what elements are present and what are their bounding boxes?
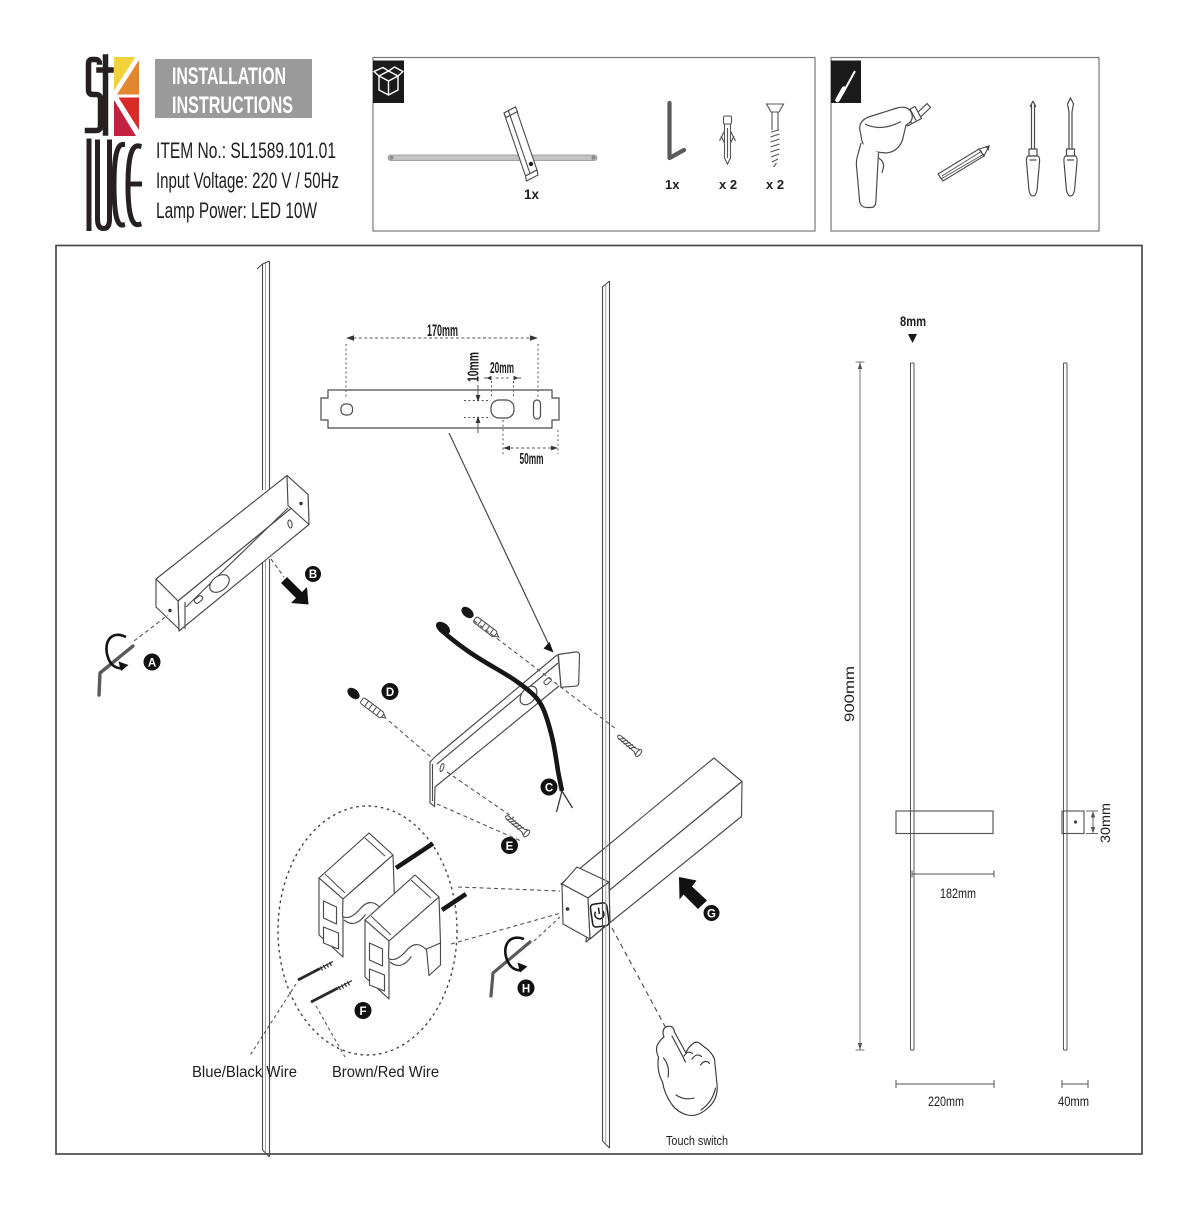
svg-text:30mm: 30mm <box>1098 803 1113 843</box>
svg-text:1x: 1x <box>665 177 680 192</box>
svg-text:A: A <box>148 658 156 670</box>
svg-text:Lamp Power: LED 10W: Lamp Power: LED 10W <box>156 198 317 223</box>
svg-text:40mm: 40mm <box>1058 1094 1089 1109</box>
svg-text:900mm: 900mm <box>842 666 857 722</box>
svg-text:INSTRUCTIONS: INSTRUCTIONS <box>172 92 293 119</box>
svg-text:Touch switch: Touch switch <box>666 1133 728 1148</box>
svg-text:x 2: x 2 <box>766 177 784 192</box>
svg-text:INSTALLATION: INSTALLATION <box>172 63 286 90</box>
svg-text:170mm: 170mm <box>427 321 458 340</box>
svg-text:Blue/Black Wire: Blue/Black Wire <box>192 1064 297 1081</box>
svg-text:182mm: 182mm <box>940 886 976 901</box>
svg-text:220mm: 220mm <box>928 1094 964 1109</box>
svg-text:8mm: 8mm <box>900 313 926 329</box>
svg-text:ITEM No.: SL1589.101.01: ITEM No.: SL1589.101.01 <box>156 138 336 163</box>
svg-text:B: B <box>309 569 317 581</box>
svg-text:Brown/Red Wire: Brown/Red Wire <box>332 1064 439 1081</box>
svg-text:Input Voltage: 220 V / 50Hz: Input Voltage: 220 V / 50Hz <box>156 168 339 193</box>
svg-text:C: C <box>545 783 553 795</box>
svg-text:20mm: 20mm <box>490 360 514 377</box>
svg-text:1x: 1x <box>524 187 540 202</box>
svg-text:x 2: x 2 <box>719 177 737 192</box>
svg-text:D: D <box>386 687 394 699</box>
svg-text:10mm: 10mm <box>466 352 483 382</box>
svg-text:H: H <box>522 984 530 996</box>
svg-text:F: F <box>359 1006 366 1018</box>
svg-text:G: G <box>707 908 716 920</box>
svg-text:50mm: 50mm <box>520 451 544 468</box>
svg-text:E: E <box>506 841 514 853</box>
